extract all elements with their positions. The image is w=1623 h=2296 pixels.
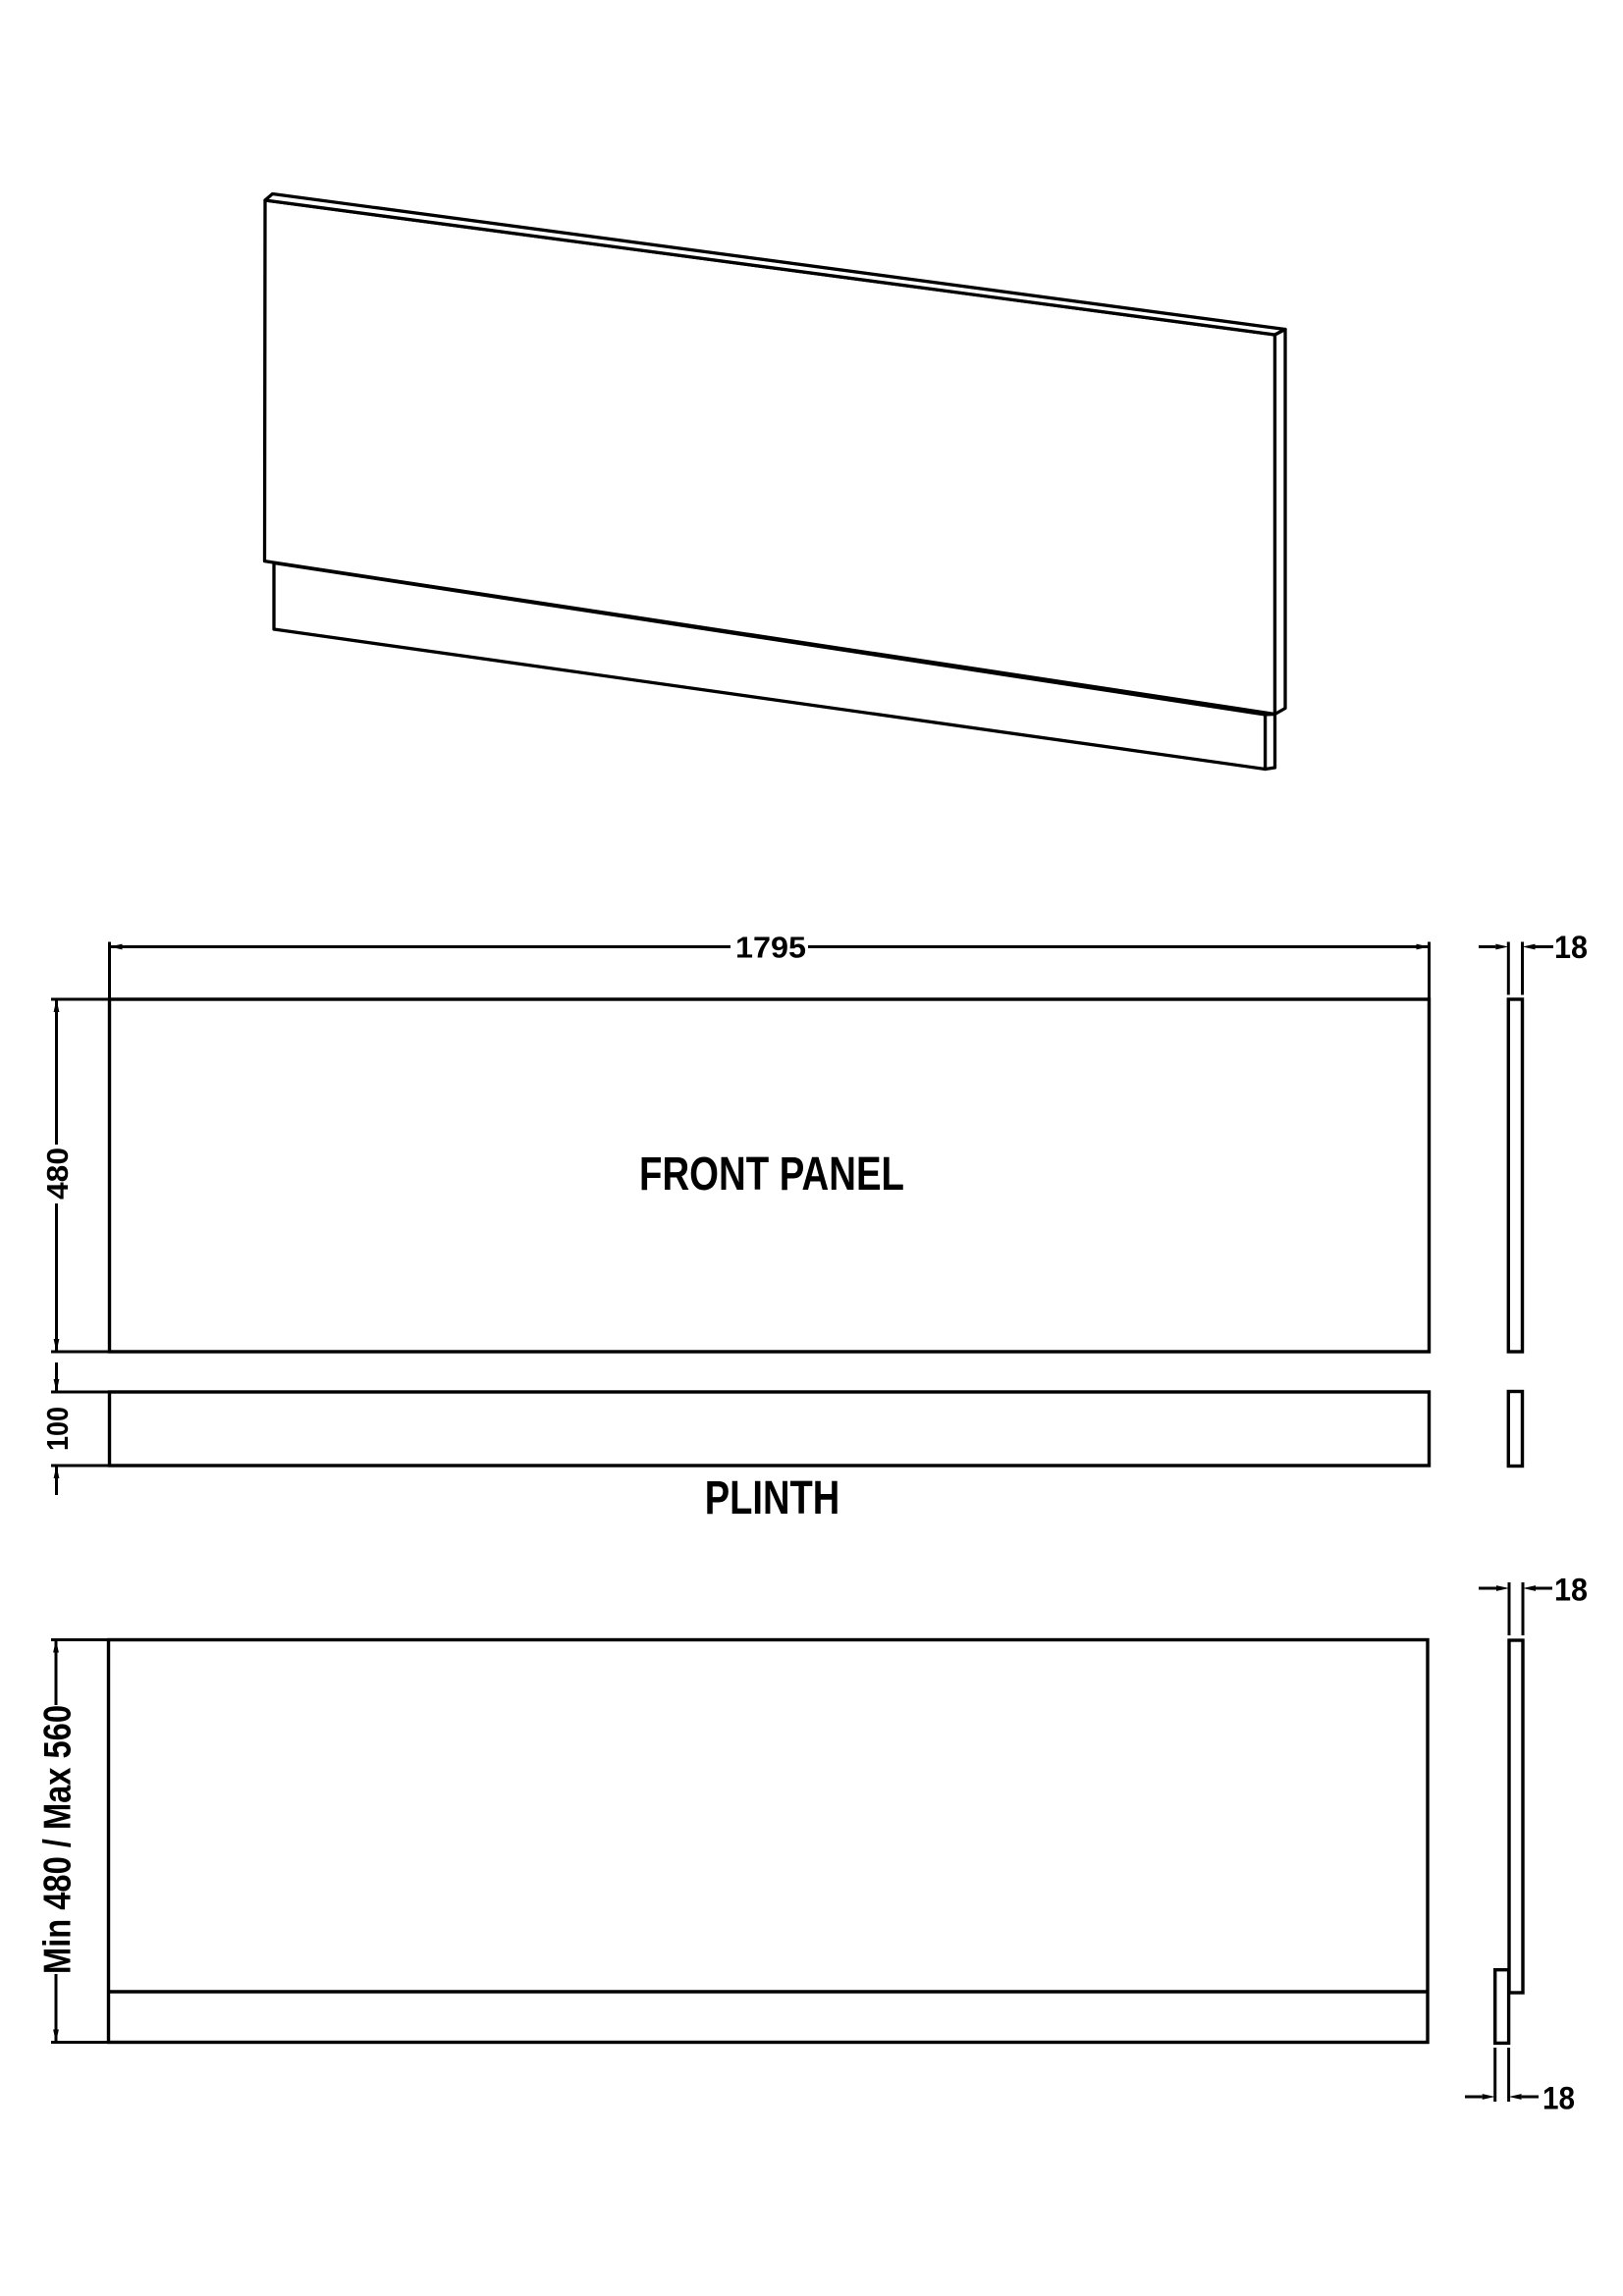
svg-text:18: 18 <box>1554 1573 1588 1608</box>
svg-text:PLINTH: PLINTH <box>705 1472 840 1524</box>
svg-text:480: 480 <box>40 1148 75 1200</box>
svg-text:1795: 1795 <box>735 931 806 965</box>
svg-text:Min 480 / Max 560: Min 480 / Max 560 <box>37 1705 80 1974</box>
svg-text:100: 100 <box>40 1407 75 1451</box>
svg-text:18: 18 <box>1542 2081 1575 2116</box>
svg-text:18: 18 <box>1554 930 1588 965</box>
svg-text:FRONT PANEL: FRONT PANEL <box>639 1148 904 1201</box>
